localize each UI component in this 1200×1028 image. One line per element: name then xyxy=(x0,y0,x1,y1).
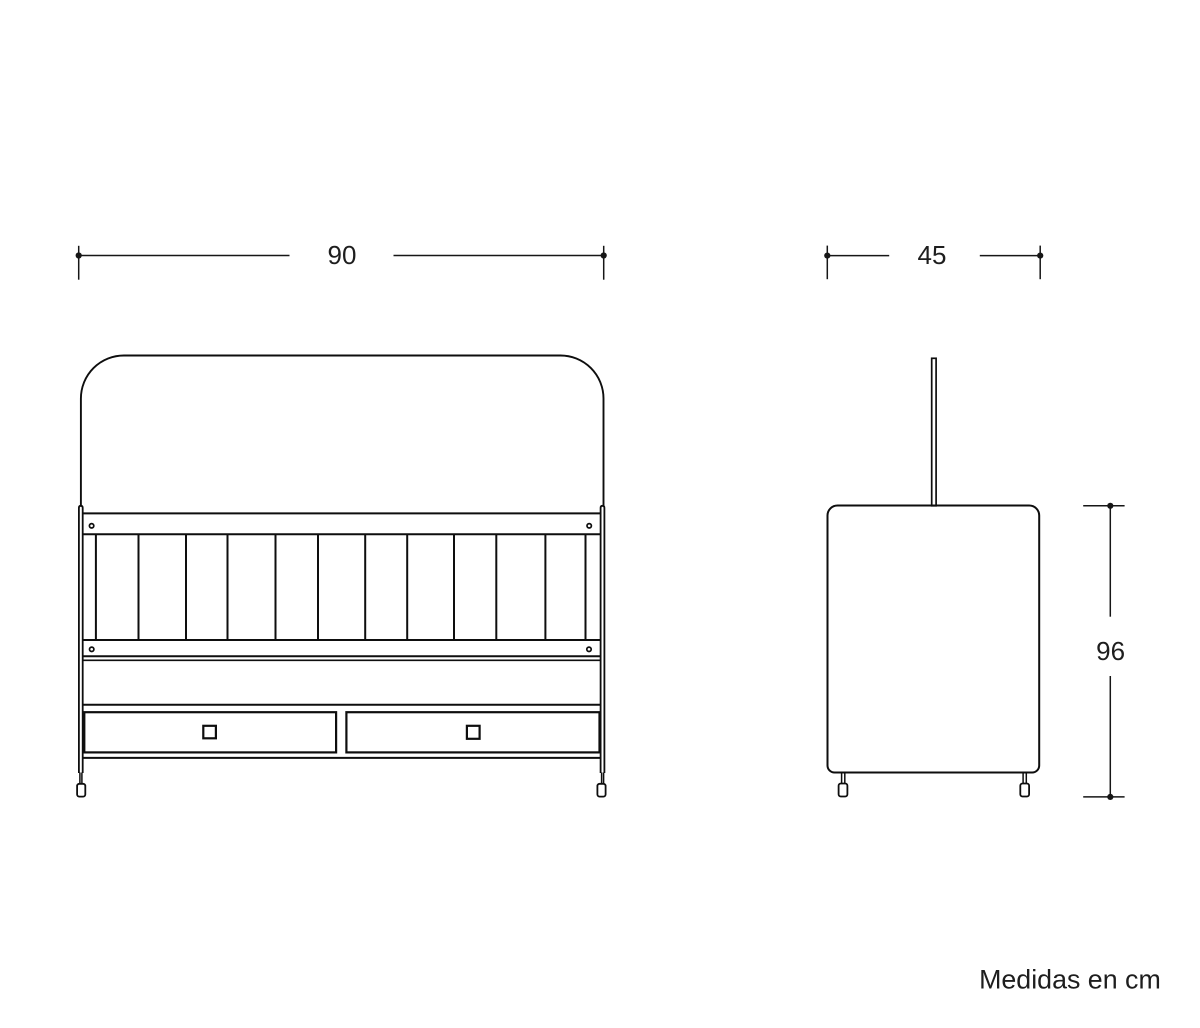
svg-text:90: 90 xyxy=(328,240,357,270)
svg-text:Medidas en cm: Medidas en cm xyxy=(979,964,1161,994)
svg-text:45: 45 xyxy=(918,240,947,270)
svg-text:96: 96 xyxy=(1096,636,1125,666)
